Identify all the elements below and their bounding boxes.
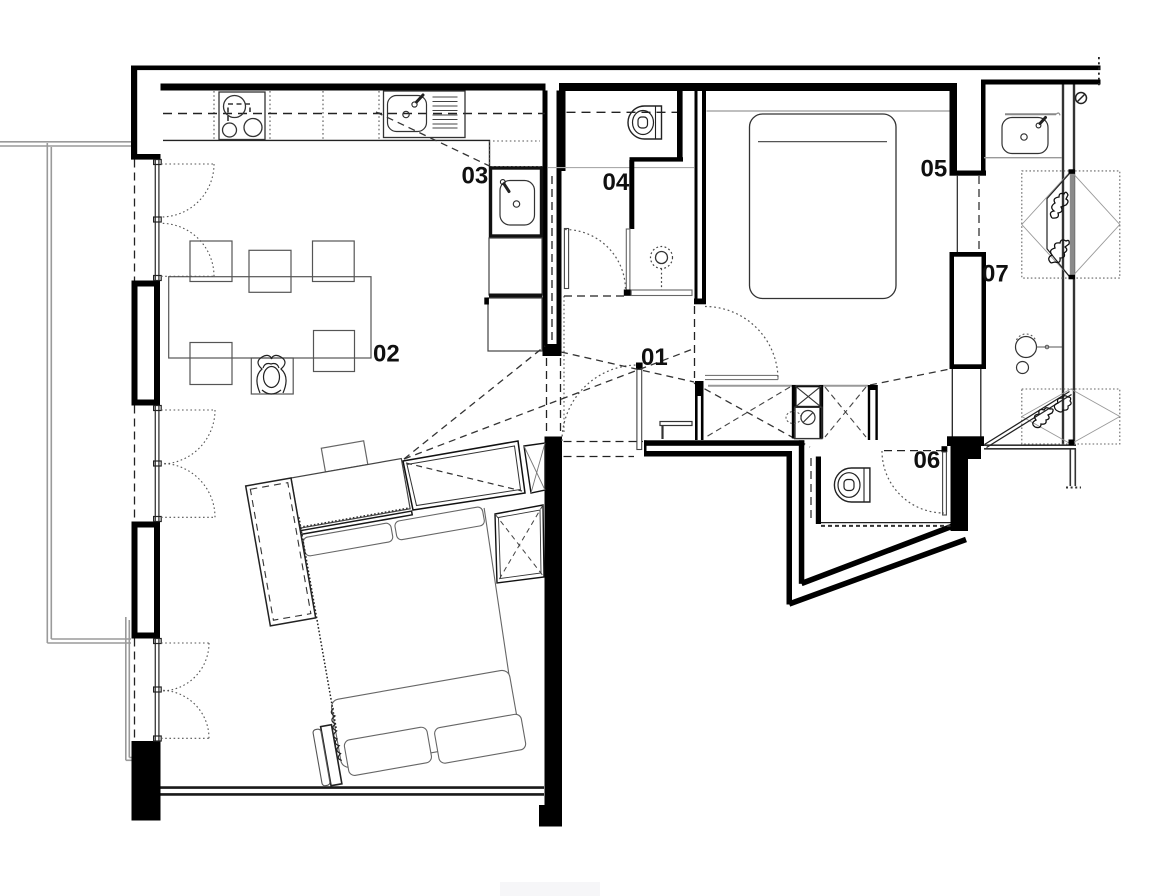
svg-text:06: 06 xyxy=(914,447,941,474)
svg-text:04: 04 xyxy=(603,169,630,196)
svg-text:05: 05 xyxy=(921,156,948,183)
svg-text:03: 03 xyxy=(462,163,489,190)
svg-text:01: 01 xyxy=(641,344,668,371)
svg-text:02: 02 xyxy=(373,341,400,368)
svg-text:07: 07 xyxy=(982,261,1009,288)
